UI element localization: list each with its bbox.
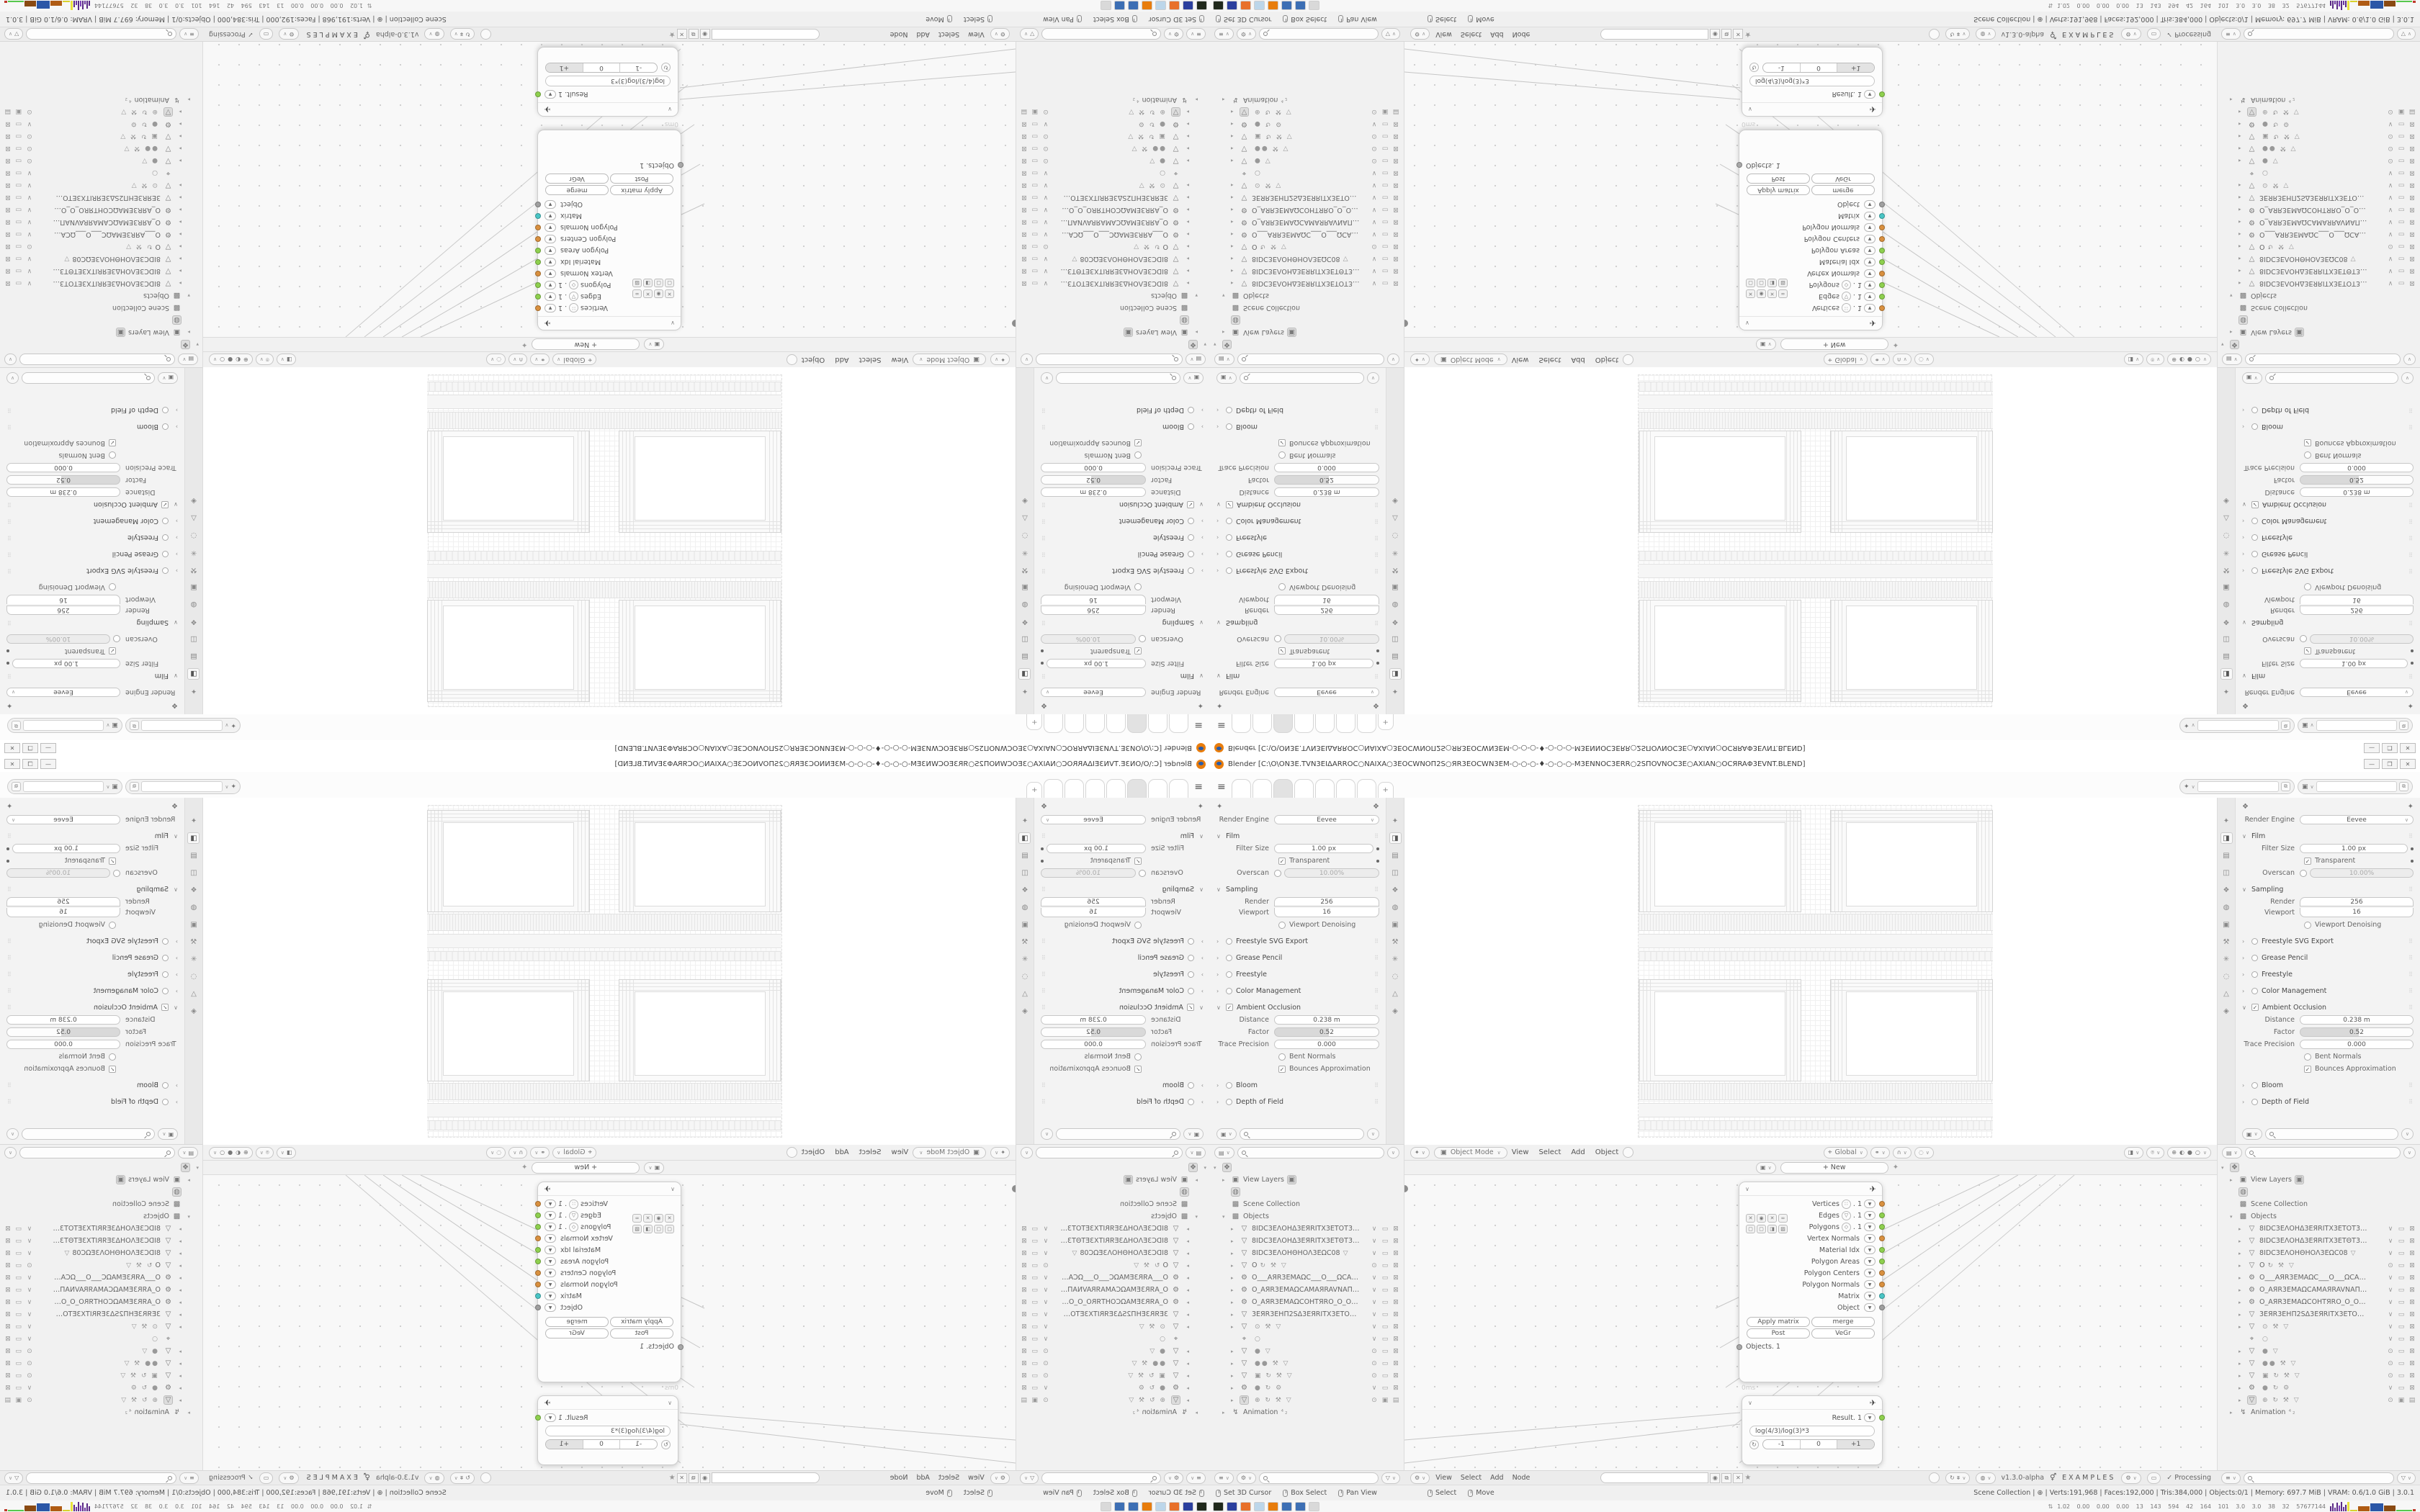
- outliner-object-row[interactable]: ▸ ▽ ⊙ ⚒ ▽ ∨ ▭ ⊠: [1214, 1320, 1400, 1333]
- outliner-object-row[interactable]: ▸ ▽ 8IDC3EΛOHΔ3EЯRITX3ETOT3EXTIS ∨ ▭ ⊠: [4, 277, 199, 289]
- outliner-object-row[interactable]: ▸ ▽ ⊕ ↻ ⚒ ▽ ⊙ ▣ ▤: [1020, 1394, 1206, 1406]
- pivot-dropdown[interactable]: ⚭∨: [1870, 354, 1890, 366]
- bounces-checkbox[interactable]: ✓: [2304, 1066, 2311, 1073]
- transform-orientation-dropdown[interactable]: ⌖Global∨: [1824, 1147, 1868, 1158]
- node-output-socket-row[interactable]: Vertices ∷ . 1 ▼: [538, 1198, 681, 1210]
- editor-type-button[interactable]: ▣∨: [2242, 372, 2262, 384]
- render-toggle-icon[interactable]: ▣: [116, 1175, 125, 1184]
- visibility-toggle-icon[interactable]: ∨: [1041, 170, 1050, 177]
- workspace-tab[interactable]: [1273, 779, 1293, 798]
- editor-type-button[interactable]: ▣∨: [1216, 1128, 1237, 1140]
- outliner-objects[interactable]: ▾▩Objects: [2221, 1210, 2416, 1223]
- node-tree-name-input[interactable]: [1600, 29, 1708, 40]
- keyframe-dot[interactable]: [2411, 860, 2414, 863]
- output-socket-dot[interactable]: [535, 91, 541, 97]
- outliner-object-row[interactable]: ⌖ ○ ∨ ▭ ⊠: [2221, 167, 2416, 179]
- filter-dropdown[interactable]: ∨: [1367, 1128, 1379, 1140]
- render-toggle-icon[interactable]: ⊠: [1391, 1311, 1400, 1318]
- properties-tab-icon[interactable]: ◨: [1389, 832, 1402, 844]
- node-editor-canvas[interactable]: ∨ ✈ Vertices ∷ . 1 ▼: [203, 1175, 1016, 1470]
- formula-expression-field[interactable]: log(4/3)/log(3)*3: [545, 76, 671, 86]
- section-toggle[interactable]: [2251, 971, 2258, 978]
- gizmo-dropdown[interactable]: ◨∨: [2124, 1147, 2144, 1158]
- properties-tab-icon[interactable]: ✦: [1019, 815, 1031, 827]
- outliner-object-row[interactable]: ▸ ⚙ O___AЯR3EMAΩC___O___ΩCAM3I ∨ ▭ ⊠: [4, 1272, 199, 1284]
- output-socket-dot[interactable]: [535, 1282, 541, 1287]
- outliner-object-row[interactable]: ▸ ▽ ●● ⚒ ▽ ⊙ ▭ ⊠: [1214, 1357, 1400, 1369]
- selector-input[interactable]: [23, 781, 104, 792]
- visibility-toggle-icon[interactable]: ⊙: [2386, 145, 2395, 153]
- socket-dropdown[interactable]: ▼: [1864, 1280, 1875, 1289]
- viewport-toggle-icon[interactable]: ▭: [1031, 121, 1039, 128]
- render-engine-select[interactable]: Eevee∨: [1274, 815, 1379, 824]
- node-mini-button[interactable]: ▢: [665, 279, 674, 287]
- workspace-tab[interactable]: [1044, 779, 1063, 798]
- properties-tab-icon[interactable]: ◈: [188, 495, 200, 507]
- viewport-toggle-icon[interactable]: ▭: [2397, 243, 2406, 251]
- visibility-toggle-icon[interactable]: ⊙: [1041, 158, 1050, 165]
- properties-tab-icon[interactable]: ◈: [2220, 495, 2233, 507]
- section-toggle[interactable]: [1226, 1082, 1232, 1089]
- render-toggle-icon[interactable]: ⊠: [4, 231, 12, 238]
- output-socket-dot[interactable]: [535, 294, 541, 300]
- viewport-denoising-toggle[interactable]: [1278, 922, 1286, 929]
- render-toggle-icon[interactable]: ⊠: [4, 1238, 12, 1245]
- node-editor-menu-item[interactable]: Select: [1461, 1474, 1482, 1482]
- taskbar-app-icon[interactable]: [1196, 1502, 1207, 1511]
- viewport-toggle-icon[interactable]: ▭: [1381, 1225, 1389, 1233]
- viewport-toggle-icon[interactable]: ▭: [1381, 1372, 1389, 1380]
- section-toggle[interactable]: [1226, 552, 1232, 558]
- section-toggle[interactable]: [2251, 568, 2258, 575]
- visibility-toggle-icon[interactable]: ∨: [1370, 280, 1379, 287]
- collapse-icon[interactable]: ∨: [668, 107, 672, 113]
- bent-normals-toggle[interactable]: [1134, 1053, 1142, 1061]
- viewport-toggle-icon[interactable]: ▭: [14, 1360, 23, 1367]
- viewport-3d[interactable]: [203, 367, 1016, 714]
- outliner-filter-dropdown[interactable]: ∨: [2403, 354, 2416, 365]
- node-editor-menu-item[interactable]: Add: [1490, 30, 1503, 38]
- section-sampling[interactable]: Sampling: [2251, 886, 2283, 894]
- increment-button[interactable]: +1: [546, 63, 583, 72]
- properties-tab-icon[interactable]: ◨: [1389, 668, 1402, 680]
- viewport-menu-item[interactable]: Add: [1571, 1148, 1585, 1156]
- outliner-object-row[interactable]: ▸ ▽ 8IDC3EΛOHΔ3EЯRITX3ETΘT3EXTIS ∨ ▭ ⊠: [2221, 1235, 2416, 1247]
- outliner-filter-dropdown[interactable]: ∨: [1387, 1147, 1399, 1158]
- overlays-dropdown[interactable]: ⌾∨: [2146, 354, 2164, 366]
- viewport-toggle-icon[interactable]: ▭: [14, 280, 23, 287]
- ao-factor-slider[interactable]: 0.52: [1041, 475, 1146, 485]
- render-toggle-icon[interactable]: ⊠: [1391, 1287, 1400, 1294]
- properties-tab-icon[interactable]: ✦: [2220, 815, 2233, 827]
- outliner-footer-mode[interactable]: ≡∨: [1186, 1472, 1206, 1484]
- visibility-toggle-icon[interactable]: ⊙: [2386, 1397, 2395, 1404]
- taskbar-app-icon[interactable]: [1183, 1, 1193, 11]
- node-mini-button[interactable]: ▢: [1746, 279, 1755, 287]
- node-editor-menu-item[interactable]: Add: [1490, 1474, 1503, 1482]
- section-toggle[interactable]: [162, 938, 169, 945]
- viewport-toggle-icon[interactable]: ▭: [1031, 145, 1039, 153]
- section-toggle[interactable]: [162, 535, 169, 541]
- shading-toggle-group[interactable]: ⊕◐●○∨: [209, 354, 253, 366]
- transparent-checkbox[interactable]: ✓: [1278, 858, 1286, 865]
- visibility-toggle-icon[interactable]: ∨: [25, 1274, 34, 1282]
- transparent-checkbox[interactable]: ✓: [1278, 648, 1286, 655]
- render-toggle-icon[interactable]: ⊠: [2408, 243, 2416, 251]
- outliner-footer-mode[interactable]: ≡∨: [1214, 1472, 1234, 1484]
- outliner-filter-dropdown[interactable]: ∨: [1021, 1147, 1033, 1158]
- render-toggle-icon[interactable]: ⊠: [1391, 1225, 1400, 1233]
- outliner-object-row[interactable]: ▸ ▽ ▣ ↻ ⚒ ▽ ⊙ ▭ ⊠: [4, 1369, 199, 1382]
- viewport-toggle-icon[interactable]: ▭: [2397, 1274, 2406, 1282]
- render-toggle-icon[interactable]: ⊠: [2408, 207, 2416, 214]
- render-toggle-icon[interactable]: ⊠: [2408, 1348, 2416, 1355]
- outliner-object-row[interactable]: ▸ ▽ 3EЯR3EHΠ2SΔ3EЯRITX3ETOT3EXTI ∨ ▭ ⊠: [1214, 192, 1400, 204]
- outliner-object-row[interactable]: ▸ ▽ ⊕ ↻ ⚒ ▽ ⊙ ▣ ▤: [4, 106, 199, 118]
- visibility-toggle-icon[interactable]: ⊙: [1370, 109, 1379, 116]
- workspace-tab[interactable]: [1232, 779, 1251, 798]
- viewport-samples-field[interactable]: 16: [1041, 595, 1146, 604]
- outliner-object-row[interactable]: ▸ ▽ ● ▽ ⊙ ▭ ⊠: [4, 1345, 199, 1357]
- render-toggle-icon[interactable]: ⊠: [1020, 1250, 1028, 1257]
- section-toggle[interactable]: [1226, 568, 1232, 575]
- pin-icon[interactable]: ★: [1744, 30, 1751, 38]
- active-tool-button[interactable]: ✦∨: [1410, 1147, 1430, 1158]
- copy-button[interactable]: ⧉: [689, 30, 699, 40]
- outliner-object-row[interactable]: ▸ ⚙ O_AЯR3EMAΩCOHTЯRO_O_OЯRTH ∨ ▭ ⊠: [1020, 1296, 1206, 1308]
- render-toggle-icon[interactable]: ⊠: [1020, 243, 1028, 251]
- render-toggle-icon[interactable]: ⊠: [2408, 1274, 2416, 1282]
- outliner-footer-funnel[interactable]: ▽∨: [4, 29, 23, 40]
- outliner-animation[interactable]: ▸↯Animation⁴₂: [1020, 94, 1206, 106]
- outliner-object-row[interactable]: ▸ ▽ ▣ ↻ ⚒ ▽ ⊙ ▭ ⊠: [1020, 1369, 1206, 1382]
- viewport-denoising-toggle[interactable]: [2304, 922, 2311, 929]
- outliner-objects[interactable]: ▾▩Objects: [4, 289, 199, 302]
- section-toggle[interactable]: [2251, 535, 2258, 541]
- overscan-toggle[interactable]: [113, 636, 120, 643]
- output-socket-dot[interactable]: [1879, 91, 1885, 97]
- outliner-object-row[interactable]: ▸ ⚙ O_AЯR3EMAΩCOHTЯRO_O_OЯRTH ∨ ▭ ⊠: [1214, 204, 1400, 216]
- visibility-toggle-icon[interactable]: ∨: [1370, 1336, 1379, 1343]
- outliner-objects[interactable]: ▾▩Objects: [1214, 1210, 1400, 1223]
- visibility-toggle-icon[interactable]: ∨: [25, 121, 34, 128]
- examples-label[interactable]: EXAMPLES: [2062, 30, 2115, 38]
- viewport-toggle-icon[interactable]: ▭: [1381, 1323, 1389, 1331]
- keyframe-dot[interactable]: [6, 662, 9, 665]
- result-socket-row[interactable]: Result. 1 ▼: [1742, 89, 1882, 100]
- workspace-tab[interactable]: [1336, 714, 1355, 733]
- properties-tab-icon[interactable]: ◫: [188, 634, 200, 645]
- visibility-toggle-icon[interactable]: ⊙: [1041, 1262, 1050, 1269]
- render-toggle-icon[interactable]: ⊠: [4, 1250, 12, 1257]
- properties-tab-icon[interactable]: ▤: [2220, 850, 2233, 861]
- visibility-toggle-icon[interactable]: ∨: [1041, 219, 1050, 226]
- outliner-object-row[interactable]: ▸ ▽ ●● ⚒ ▽ ⊙ ▭ ⊠: [2221, 143, 2416, 155]
- visibility-toggle-icon[interactable]: ∨: [1370, 182, 1379, 189]
- node-editor-canvas[interactable]: ∨ ✈ Vertices ∷ . 1 ▼: [1404, 42, 2217, 337]
- outliner-object-row[interactable]: ▸ ▽ O ↻ ⚒ ▽ ⊙ ▭ ⊠: [1214, 1259, 1400, 1272]
- socket-dropdown[interactable]: ▼: [544, 90, 556, 99]
- input-socket-dot[interactable]: [1736, 163, 1742, 168]
- increment-button[interactable]: -1: [619, 1440, 657, 1449]
- collapsed-section-title[interactable]: Depth of Field: [1137, 1098, 1184, 1106]
- new-node-tree-button[interactable]: + New: [1780, 1162, 1888, 1174]
- viewport-samples-field[interactable]: 16: [6, 595, 120, 604]
- workspace-tab[interactable]: [1336, 779, 1355, 798]
- visibility-toggle-icon[interactable]: ⊙: [1370, 1262, 1379, 1269]
- node-editor-canvas[interactable]: ∨ ✈ Vertices ∷ . 1 ▼: [203, 42, 1016, 337]
- viewport-toggle-icon[interactable]: ▭: [2397, 219, 2406, 226]
- outliner-footer-search[interactable]: [1041, 1472, 1161, 1484]
- editor-icon[interactable]: ❖: [181, 1163, 190, 1172]
- section-sampling[interactable]: Sampling: [1162, 619, 1194, 627]
- collapse-icon[interactable]: ∨: [671, 1186, 675, 1192]
- restore-button[interactable]: ❐: [2382, 759, 2398, 769]
- workspace-tab[interactable]: [1315, 714, 1335, 733]
- outliner-object-row[interactable]: ▸ ▽ ⊕ ↻ ⚒ ▽ ⊙ ▣ ▤: [2221, 106, 2416, 118]
- viewport-samples-field[interactable]: 16: [1274, 595, 1379, 604]
- output-socket-dot[interactable]: [535, 1415, 541, 1421]
- ao-trace-field[interactable]: 0.000: [1041, 1040, 1146, 1049]
- collapsed-section-title[interactable]: Freestyle: [2262, 971, 2293, 978]
- section-ambient-occlusion[interactable]: Ambient Occlusion: [1237, 501, 1301, 509]
- viewport-toggle-icon[interactable]: ▭: [14, 1274, 23, 1282]
- section-ambient-occlusion[interactable]: Ambient Occlusion: [2262, 1004, 2326, 1012]
- visibility-toggle-icon[interactable]: ∨: [2386, 1323, 2395, 1331]
- fake-user-shield-button[interactable]: ◉: [1710, 1473, 1720, 1483]
- viewport-toggle-icon[interactable]: ▭: [1381, 1336, 1389, 1343]
- node-output-socket-row[interactable]: Object ▼: [1739, 1302, 1882, 1313]
- filter-dropdown[interactable]: ∨: [6, 372, 19, 384]
- collapsed-section-title[interactable]: Freestyle: [1153, 971, 1184, 978]
- outliner-objects[interactable]: ▾▩Objects: [1020, 1210, 1206, 1223]
- filter-size-field[interactable]: 1.00 px: [1274, 659, 1373, 668]
- editor-type-button[interactable]: ▣∨: [158, 1128, 178, 1140]
- outliner-footer-search[interactable]: [1259, 1472, 1379, 1484]
- viewport-toggle-icon[interactable]: ▭: [14, 256, 23, 263]
- render-toggle-icon[interactable]: ⊠: [2408, 231, 2416, 238]
- render-toggle-icon[interactable]: ▣: [1124, 328, 1133, 337]
- taskbar-app-icon[interactable]: [1227, 1502, 1237, 1511]
- proportional-edit-dropdown[interactable]: ◌∨: [486, 354, 506, 366]
- node-button[interactable]: Post: [610, 174, 673, 184]
- section-ambient-occlusion[interactable]: Ambient Occlusion: [94, 1004, 158, 1012]
- visibility-toggle-icon[interactable]: ⊙: [1041, 1360, 1050, 1367]
- objects-in-node[interactable]: ∨ ✈ Vertices ∷ . 1 ▼: [537, 1182, 681, 1382]
- ao-distance-field[interactable]: 0.238 m: [1041, 487, 1146, 497]
- outliner-footer-search[interactable]: [1041, 29, 1161, 40]
- keyframe-dot[interactable]: [1376, 650, 1379, 653]
- socket-dropdown[interactable]: ▼: [544, 1292, 556, 1300]
- overscan-toggle[interactable]: [2300, 870, 2307, 877]
- viewport-denoising-toggle[interactable]: [109, 584, 116, 591]
- ao-factor-slider[interactable]: 0.52: [2300, 1027, 2414, 1037]
- viewport-toggle-icon[interactable]: ▭: [14, 121, 23, 128]
- overscan-field[interactable]: 10.00%: [1041, 634, 1136, 644]
- section-toggle[interactable]: [1226, 518, 1232, 525]
- outliner-animation[interactable]: ▸↯Animation⁴₂: [1214, 1406, 1400, 1418]
- outliner-object-row[interactable]: ▸ ⚙ O_AЯR3EMAΩCAMAЯRAVNAΠ__O ∨ ▭ ⊠: [2221, 216, 2416, 228]
- node-action-icon[interactable]: ✈: [1870, 319, 1876, 328]
- properties-tab-icon[interactable]: ✳: [1019, 953, 1031, 965]
- render-toggle-icon[interactable]: ⊠: [1020, 121, 1028, 128]
- objects-in-node[interactable]: ∨ ✈ Vertices ∷ . 1 ▼: [537, 130, 681, 330]
- viewport-toggle-icon[interactable]: ▭: [1031, 1336, 1039, 1343]
- outliner-view-layers[interactable]: ▸▣View Layers▣: [1214, 1174, 1400, 1186]
- node-output-socket-row[interactable]: Polygon Areas ▼: [1739, 1256, 1882, 1267]
- keyframe-dot[interactable]: [1041, 860, 1044, 863]
- taskbar-app-icon[interactable]: [1227, 1, 1237, 11]
- outliner-object-row[interactable]: ▸ ▽ 3EЯR3EHΠ2SΔ3EЯRITX3ETOT3EXTI ∨ ▭ ⊠: [4, 1308, 199, 1320]
- node-button[interactable]: Post: [1747, 1328, 1810, 1338]
- workspace-tab[interactable]: [1232, 714, 1251, 733]
- viewport-toggle-icon[interactable]: ▭: [14, 1287, 23, 1294]
- render-toggle-icon[interactable]: ⊠: [1391, 121, 1400, 128]
- viewport-toggle-icon[interactable]: ▣: [1381, 109, 1389, 116]
- visibility-toggle-icon[interactable]: ∨: [25, 231, 34, 238]
- visibility-toggle-icon[interactable]: ∨: [2386, 231, 2395, 238]
- outliner-object-row[interactable]: ▸ ▽ 8IDC3EΛOHΘHOΛ3EΩC08 ▽ ∨ ▭ ⊠: [2221, 1247, 2416, 1259]
- visibility-toggle-icon[interactable]: ∨: [25, 1299, 34, 1306]
- visibility-toggle-icon[interactable]: ∨: [1370, 231, 1379, 238]
- node-action-icon[interactable]: ✈: [544, 1184, 550, 1194]
- outliner-object-row[interactable]: ▸ ▽ 8IDC3EΛOHΘHOΛ3EΩC08 ▽ ∨ ▭ ⊠: [1020, 1247, 1206, 1259]
- viewport-toggle-icon[interactable]: ▭: [1381, 268, 1389, 275]
- viewport-toggle-icon[interactable]: ▭: [14, 207, 23, 214]
- filter-size-field[interactable]: 1.00 px: [2300, 844, 2408, 853]
- properties-tab-icon[interactable]: △: [188, 988, 200, 999]
- visibility-toggle-icon[interactable]: ∨: [2386, 182, 2395, 189]
- node-output-socket-row[interactable]: Vertex Normals ▼: [538, 268, 681, 279]
- editor-type-button[interactable]: ▣∨: [1183, 1128, 1204, 1140]
- viewport-toggle-icon[interactable]: ▭: [14, 158, 23, 165]
- render-toggle-icon[interactable]: ⊠: [1020, 280, 1028, 287]
- viewport-toggle-icon[interactable]: ▭: [2397, 1225, 2406, 1233]
- menu-hamburger-icon[interactable]: ≡: [1194, 781, 1203, 793]
- properties-search-input[interactable]: [1240, 1128, 1364, 1140]
- section-toggle[interactable]: [1188, 938, 1194, 945]
- bent-normals-toggle[interactable]: [109, 1053, 116, 1061]
- pin-icon[interactable]: ✦: [1893, 1164, 1899, 1171]
- socket-dropdown[interactable]: ▼: [544, 1257, 556, 1266]
- viewport-toggle-icon[interactable]: ▭: [14, 1336, 23, 1343]
- socket-dropdown[interactable]: ▼: [544, 200, 556, 209]
- outliner-objects[interactable]: ▾▩Objects: [2221, 289, 2416, 302]
- editor-icon[interactable]: ❖: [1188, 1163, 1198, 1172]
- render-toggle-icon[interactable]: ⊠: [4, 194, 12, 202]
- settings-pill[interactable]: ⚙∨: [2121, 1472, 2141, 1484]
- output-socket-dot[interactable]: [1879, 202, 1885, 207]
- properties-tab-icon[interactable]: ▤: [188, 850, 200, 861]
- scene-selector[interactable]: ▣ ∨ ⧉: [2298, 718, 2413, 733]
- node-output-socket-row[interactable]: Vertex Normals ▼: [1739, 268, 1882, 279]
- outliner-scene-collection[interactable]: ▩Scene Collection: [1214, 302, 1400, 314]
- node-output-socket-row[interactable]: Material Idx ▼: [538, 1244, 681, 1256]
- pivot-dropdown[interactable]: ⚭∨: [530, 354, 550, 366]
- viewport-toggle-icon[interactable]: ▭: [1031, 182, 1039, 189]
- node-button[interactable]: Apply matrix: [1747, 1317, 1810, 1327]
- ao-checkbox[interactable]: ✓: [161, 501, 169, 508]
- visibility-toggle-icon[interactable]: ∨: [1370, 207, 1379, 214]
- increment-button[interactable]: -1: [1763, 63, 1801, 72]
- visibility-toggle-icon[interactable]: ∨: [2386, 219, 2395, 226]
- node-button[interactable]: Post: [1747, 174, 1810, 184]
- editor-type-button[interactable]: ▣∨: [1183, 372, 1204, 384]
- properties-tab-icon[interactable]: ▤: [1389, 651, 1402, 662]
- viewport-toggle-icon[interactable]: ▭: [1381, 1238, 1389, 1245]
- node-editor-menu-item[interactable]: Select: [938, 1474, 959, 1482]
- bent-normals-toggle[interactable]: [109, 452, 116, 459]
- properties-tab-icon[interactable]: ✳: [1389, 953, 1402, 965]
- close-button[interactable]: ✕: [2400, 743, 2416, 753]
- unlink-button[interactable]: ✕: [1733, 30, 1743, 40]
- proportional-edit-dropdown[interactable]: ◌∨: [1914, 1147, 1934, 1158]
- keyframe-dot[interactable]: [1376, 662, 1379, 665]
- properties-search-input[interactable]: [2265, 372, 2398, 384]
- properties-editor-icon[interactable]: ❖: [171, 702, 178, 710]
- viewport-toggle-icon[interactable]: ▭: [2397, 133, 2406, 140]
- viewport-denoising-toggle[interactable]: [109, 922, 116, 929]
- render-toggle-icon[interactable]: ⊠: [4, 1225, 12, 1233]
- visibility-toggle-icon[interactable]: ⊙: [1041, 133, 1050, 140]
- visibility-toggle-icon[interactable]: ⊙: [2386, 1262, 2395, 1269]
- keyframe-dot[interactable]: [1041, 650, 1044, 653]
- render-samples-field[interactable]: 256: [2300, 897, 2414, 906]
- outliner-object-row[interactable]: ▸ ▽ 3EЯR3EHΠ2SΔ3EЯRITX3ETOT3EXTI ∨ ▭ ⊠: [1020, 192, 1206, 204]
- filter-size-field[interactable]: 1.00 px: [2300, 659, 2408, 668]
- collapsed-section-title[interactable]: Grease Pencil: [2262, 551, 2308, 559]
- filter-dropdown[interactable]: ∨: [6, 1128, 19, 1140]
- outliner-object-row[interactable]: ▸ ▽ ▣ ↻ ⚒ ▽ ⊙ ▭ ⊠: [2221, 130, 2416, 143]
- taskbar-app-icon[interactable]: [1213, 1, 1224, 11]
- menu-hamburger-icon[interactable]: ≡: [1194, 719, 1203, 731]
- viewport-toggle-icon[interactable]: ▭: [2397, 256, 2406, 263]
- render-toggle-icon[interactable]: ⊠: [1391, 1385, 1400, 1392]
- render-toggle-icon[interactable]: ⊠: [1020, 1385, 1028, 1392]
- transform-orientation-dropdown[interactable]: ⌖Global∨: [552, 354, 596, 366]
- objects-in-node[interactable]: ∨ ✈ Vertices ∷ . 1 ▼: [1739, 130, 1883, 330]
- copy-icon[interactable]: ⧉: [12, 721, 21, 730]
- outliner-object-row[interactable]: ▸ ▽ ⊙ ⚒ ▽ ∨ ▭ ⊠: [2221, 1320, 2416, 1333]
- render-toggle-icon[interactable]: ⊠: [2408, 133, 2416, 140]
- collapse-icon[interactable]: ∨: [1748, 107, 1752, 113]
- outliner-footer-search[interactable]: [2244, 29, 2394, 40]
- world-icon[interactable]: ◍: [1231, 1187, 1240, 1197]
- viewport-toggle-icon[interactable]: ▭: [2397, 182, 2406, 189]
- formula-node[interactable]: ∨ ✈ Result. 1 ▼ log(4/3)/log(3)*3 ↻: [1742, 1395, 1883, 1465]
- properties-tab-icon[interactable]: ◈: [1389, 495, 1402, 507]
- viewport-toggle-icon[interactable]: ▭: [2397, 207, 2406, 214]
- node-mini-button[interactable]: ◉: [654, 289, 663, 298]
- render-toggle-icon[interactable]: ⊠: [1020, 158, 1028, 165]
- node-mini-button[interactable]: ▨: [632, 1225, 642, 1233]
- keyframe-dot[interactable]: [1376, 860, 1379, 863]
- editor-type-button[interactable]: ▣∨: [158, 372, 178, 384]
- viewport-toggle-icon[interactable]: ▭: [1031, 1372, 1039, 1380]
- visibility-toggle-icon[interactable]: ∨: [1041, 268, 1050, 275]
- taskbar-app-icon[interactable]: [1142, 1502, 1152, 1511]
- node-output-socket-row[interactable]: Object ▼: [538, 199, 681, 210]
- section-toggle[interactable]: [1188, 535, 1194, 541]
- snap-dropdown[interactable]: ∩∨: [508, 1147, 527, 1158]
- render-samples-field[interactable]: 256: [1274, 606, 1379, 615]
- viewport-menu-item[interactable]: Object: [1595, 1148, 1619, 1156]
- viewport-toggle-icon[interactable]: ▭: [1381, 219, 1389, 226]
- outliner-object-row[interactable]: ▸ ▽ 8IDC3EΛOHΔ3EЯRITX3ETΘT3EXTIS ∨ ▭ ⊠: [2221, 265, 2416, 277]
- render-toggle-icon[interactable]: ⊠: [2408, 1299, 2416, 1306]
- socket-dropdown[interactable]: ▼: [544, 269, 556, 278]
- viewport-toggle-icon[interactable]: ▭: [14, 1385, 23, 1392]
